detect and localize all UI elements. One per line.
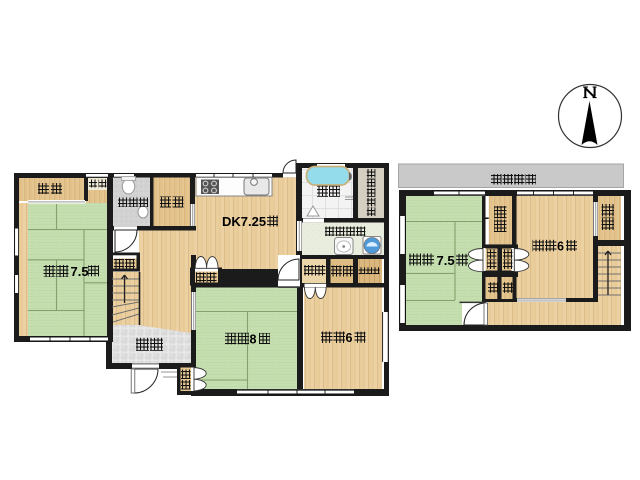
svg-text:7.5: 7.5 bbox=[437, 253, 455, 268]
svg-text:DK7.25: DK7.25 bbox=[222, 214, 266, 229]
svg-text:7.5: 7.5 bbox=[71, 264, 89, 279]
svg-text:6: 6 bbox=[557, 239, 564, 253]
svg-text:8: 8 bbox=[250, 333, 257, 347]
svg-text:6: 6 bbox=[346, 331, 353, 345]
